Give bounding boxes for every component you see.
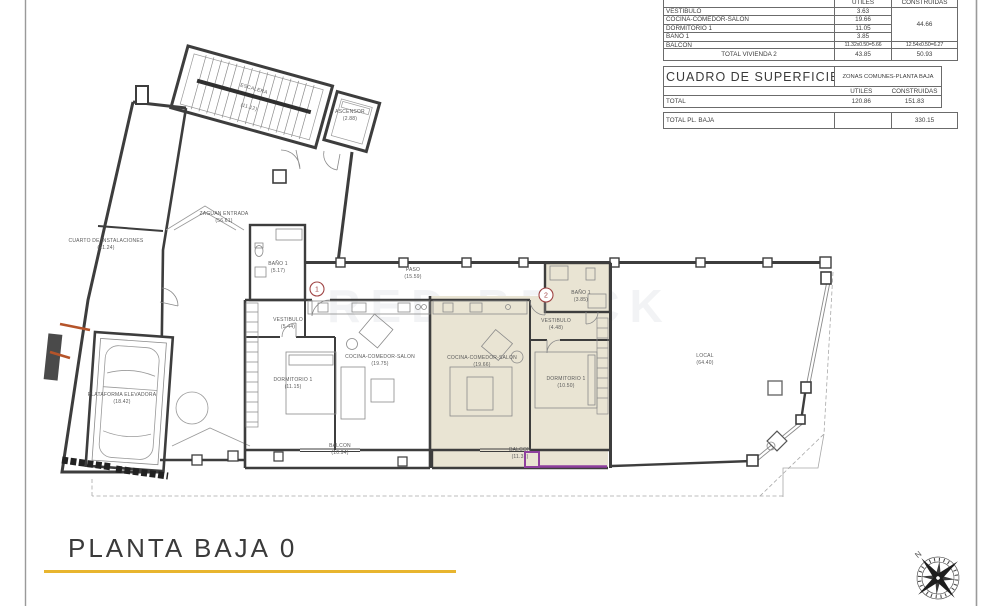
room-label-ascensor: ASCENSOR xyxy=(335,109,365,115)
column-square xyxy=(273,170,286,183)
table-row: VESTIBULO 3.63 44.66 xyxy=(664,7,958,16)
floor-plan-page: RED BRICK ESCALERA (11.12) ASCENSOR (2.8… xyxy=(0,0,1001,606)
room-label-cocina-v2: COCINA-COMEDOR-SALON xyxy=(447,355,517,361)
page-title: PLANTA BAJA 0 xyxy=(68,533,297,564)
total-planta-label: TOTAL PL. BAJA xyxy=(664,113,835,129)
bathroom-v1: BAÑO 1 (5.17) xyxy=(250,225,305,300)
wardrobe-v1 xyxy=(246,303,258,427)
local-floor-box xyxy=(768,381,782,395)
room-area-ascensor: (2.88) xyxy=(343,116,357,122)
room-area-dormitorio-v1: (11.15) xyxy=(285,384,302,390)
cuadro-subheader-row: UTILES CONSTRUIDAS xyxy=(664,87,942,96)
north-label: N xyxy=(913,549,923,560)
room-label-plataforma: PLATAFORMA ELEVADORA xyxy=(88,392,157,398)
room-label-vestibulo-v2: VESTIBULO xyxy=(541,318,571,324)
room-label-dormitorio-v1: DORMITORIO 1 xyxy=(274,377,313,383)
room-label-vestibulo-v1: VESTIBULO xyxy=(273,317,303,323)
row-label: DORMITORIO 1 xyxy=(664,24,835,33)
cuadro-total-label: TOTAL xyxy=(664,96,835,108)
vivienda2-total-row: TOTAL VIVIENDA 2 43.85 50.93 xyxy=(663,48,958,61)
cuadro-subtitle: ZONAS COMUNES-PLANTA BAJA xyxy=(835,67,942,87)
bed-v1 xyxy=(286,352,336,414)
stair-block: ESCALERA (11.12) xyxy=(171,46,381,161)
porch-gable-bottom xyxy=(172,428,250,446)
vivienda2-table: UTILES CONSTRUIDAS VESTIBULO 3.63 44.66 … xyxy=(663,0,958,50)
svg-text:2: 2 xyxy=(544,293,548,300)
room-label-local: LOCAL xyxy=(696,353,713,359)
room-label-balcon-v1: BALCON xyxy=(329,443,351,449)
room-label-bano-v1: BAÑO 1 xyxy=(268,260,288,267)
room-area-balcon-v2: (11.32) xyxy=(512,454,529,460)
compass-rose: N xyxy=(896,534,975,606)
empty-cell xyxy=(664,87,835,96)
room-label-dormitorio-v2: DORMITORIO 1 xyxy=(547,376,586,382)
room-label-zaguan: ZAGUAN ENTRADA xyxy=(200,211,249,217)
room-label-cuarto-inst: CUARTO DE INSTALACIONES xyxy=(69,238,144,244)
cuadro-total-utiles: 120.86 xyxy=(835,96,889,108)
cuadro-total-construidas: 151.83 xyxy=(888,96,942,108)
entrance-hall: ZAGUAN ENTRADA (56.61) xyxy=(160,152,352,465)
cuadro-total-row: TOTAL 120.86 151.83 xyxy=(664,96,942,108)
room-label-cocina-v1: COCINA-COMEDOR-SALON xyxy=(345,354,415,360)
room-area-plataforma: (18.42) xyxy=(113,399,130,405)
row-utiles: 3.85 xyxy=(835,33,892,42)
balcony-door-window xyxy=(300,449,360,452)
empty-cell xyxy=(835,113,892,129)
room-area-dormitorio-v2: (10.50) xyxy=(557,383,574,389)
local-window-walls xyxy=(752,281,830,464)
svg-text:1: 1 xyxy=(315,287,319,294)
room-area-bano-v2: (3.85) xyxy=(574,297,588,303)
row-utiles: 11.05 xyxy=(835,24,892,33)
cuadro-col-construidas: CONSTRUIDAS xyxy=(888,87,942,96)
cuadro-header-row: CUADRO DE SUPERFICIES ZONAS COMUNES-PLAN… xyxy=(664,67,942,87)
cuadro-col-utiles: UTILES xyxy=(835,87,889,96)
room-area-cocina-v1: (19.75) xyxy=(371,361,388,367)
total-planta-table: TOTAL PL. BAJA 330.15 xyxy=(663,112,958,129)
room-label-paso: PASO xyxy=(406,267,420,273)
construidas-merged-cell: 44.66 xyxy=(892,7,958,41)
table-header-row: UTILES CONSTRUIDAS xyxy=(664,0,958,7)
row-utiles: 3.63 xyxy=(835,7,892,16)
room-area-cocina-v2: (19.66) xyxy=(473,362,490,368)
room-area-vestibulo-v2: (4.48) xyxy=(549,325,563,331)
row-utiles: 19.66 xyxy=(835,16,892,25)
room-area-zaguan: (56.61) xyxy=(215,218,232,224)
total-vivienda2-utiles: 43.85 xyxy=(835,49,892,61)
empty-header-cell xyxy=(664,0,835,7)
title-underline xyxy=(44,570,456,573)
col-header-construidas: CONSTRUIDAS xyxy=(892,0,958,7)
room-area-local: (64.40) xyxy=(696,360,713,366)
col-header-utiles: UTILES xyxy=(835,0,892,7)
total-planta-value: 330.15 xyxy=(892,113,958,129)
room-area-paso: (15.59) xyxy=(404,274,421,280)
unit2-marker: 2 xyxy=(539,288,553,302)
room-area-vestibulo-v1: (5.44) xyxy=(281,324,295,330)
unit1-marker: 1 xyxy=(310,282,324,296)
room-area-cuarto-inst: (21.24) xyxy=(97,245,114,251)
column-circle xyxy=(176,392,208,424)
row-label: COCINA-COMEDOR-SALON xyxy=(664,16,835,25)
compass-cardinal-points xyxy=(901,541,974,606)
total-vivienda2-label: TOTAL VIVIENDA 2 xyxy=(664,49,835,61)
cuadro-superficies-table: CUADRO DE SUPERFICIES ZONAS COMUNES-PLAN… xyxy=(663,66,942,108)
row-label: VESTIBULO xyxy=(664,7,835,16)
room-area-balcon-v1: (10.94) xyxy=(331,450,348,456)
room-area-bano-v1: (5.17) xyxy=(271,268,285,274)
row-label: BAÑO 1 xyxy=(664,33,835,42)
cuadro-title: CUADRO DE SUPERFICIES xyxy=(664,67,835,87)
total-vivienda2-construidas: 50.93 xyxy=(892,49,958,61)
room-label-bano-v2: BAÑO 1 xyxy=(571,289,591,296)
local-diamond xyxy=(767,431,787,451)
